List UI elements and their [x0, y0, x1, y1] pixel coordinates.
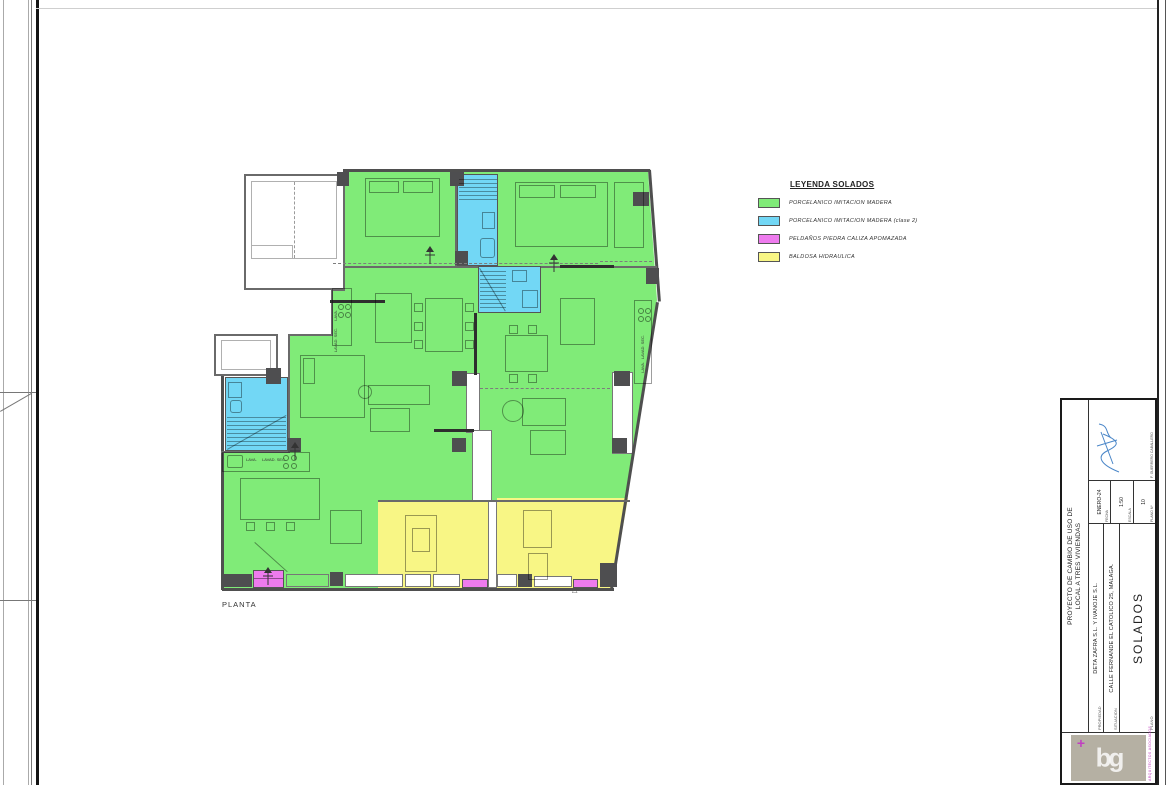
- chair: [465, 340, 474, 349]
- field-label: PLANO: [1149, 716, 1154, 730]
- column: [337, 172, 349, 186]
- project-title-line1: PROYECTO DE CAMBIO DE USO DE: [1067, 507, 1075, 625]
- column: [614, 371, 630, 386]
- corridor-gap-lower: [472, 430, 492, 502]
- legend-item-label: BALDOSA HIDRAULICA: [789, 254, 855, 260]
- sheet-border-left: [36, 0, 39, 785]
- column: [452, 371, 467, 386]
- sofa: [368, 385, 430, 405]
- column: [222, 574, 252, 587]
- wall-bottom: [222, 588, 614, 591]
- firm-logo-square: + bg: [1071, 735, 1146, 781]
- column: [646, 268, 659, 284]
- wall-left-upper-a: [343, 172, 345, 290]
- legend-item-label: PORCELANICO IMITACION MADERA (clase 2): [789, 218, 917, 224]
- sofa: [530, 430, 566, 455]
- wardrobe: [614, 182, 644, 248]
- legend-title: LEYENDA SOLADOS: [790, 180, 988, 189]
- facade-window: [497, 574, 517, 587]
- field-label: SITUACION: [1113, 708, 1118, 730]
- kitchen-island: [375, 293, 412, 343]
- pillow: [403, 181, 433, 193]
- toilet: [480, 238, 495, 258]
- kitchen-island: [560, 298, 595, 345]
- cabinet: [412, 528, 430, 552]
- dining-table: [425, 298, 463, 352]
- legend-item-label: PORCELANICO IMITACION MADERA: [789, 200, 892, 206]
- facade-window: [286, 574, 329, 587]
- legend-item: BALDOSA HIDRAULICA: [758, 252, 988, 262]
- chair: [465, 303, 474, 312]
- title-block: + bg ARQUITECTOS ASOCIADOS PROYECTO DE C…: [1060, 398, 1157, 785]
- partywall-top-right: [560, 265, 614, 268]
- kitchen-sink: [227, 455, 243, 468]
- chair: [509, 374, 518, 383]
- chair: [266, 522, 275, 531]
- chair: [465, 322, 474, 331]
- patio-step-outline: [251, 245, 293, 259]
- shelf: [330, 510, 362, 544]
- legend-item: PELDAÑOS PIEDRA CALIZA APOMAZADA: [758, 234, 988, 244]
- field-situacion: SITUACION CALLE FERNANDE EL CATOLICO 25,…: [1104, 524, 1120, 732]
- wall-left-upper-e: [288, 335, 290, 452]
- hob-burner: [345, 304, 351, 310]
- dining-table: [505, 335, 548, 372]
- column: [330, 572, 343, 586]
- chair: [246, 522, 255, 531]
- sofa: [370, 408, 410, 432]
- stairs-arrow-icon: [424, 246, 436, 264]
- legend: LEYENDA SOLADOS PORCELANICO IMITACION MA…: [758, 180, 988, 270]
- entry-triangle-mark: △: [572, 586, 577, 594]
- shower: [522, 290, 538, 308]
- hob-burner: [338, 304, 344, 310]
- hob-burner: [345, 312, 351, 318]
- hob-burner: [638, 308, 644, 314]
- hob-burner: [291, 463, 297, 469]
- logo-caption: ARQUITECTOS ASOCIADOS: [1148, 726, 1152, 781]
- sheet-border-right-thick: [1157, 0, 1159, 785]
- facade-window: [433, 574, 460, 587]
- wall-top: [343, 169, 650, 172]
- facade-window: [405, 574, 431, 587]
- dashed-line: [480, 388, 610, 389]
- sheet-border-right-thin: [1165, 0, 1166, 785]
- legend-swatch-yellow: [758, 252, 780, 262]
- legend-swatch-green: [758, 198, 780, 208]
- facade-window: [345, 574, 403, 587]
- chair: [414, 340, 423, 349]
- meta-value: 10: [1141, 499, 1147, 505]
- fold-mark: [0, 600, 36, 601]
- column: [452, 438, 466, 452]
- signature-icon: [1091, 420, 1127, 476]
- pillow: [369, 181, 399, 193]
- appliance-label: LAVA.: [334, 310, 338, 321]
- field-plano: PLANO SOLADOS: [1120, 524, 1155, 732]
- dining-table: [240, 478, 320, 520]
- partywall-mid: [474, 313, 477, 375]
- wall-left: [221, 376, 224, 590]
- meta-label: PLANO Nº: [1150, 505, 1154, 522]
- appliance-label: LAVA.: [641, 362, 645, 373]
- meta-value: ENERO-24: [1097, 490, 1103, 515]
- column: [266, 368, 281, 384]
- legend-item: PORCELANICO IMITACION MADERA: [758, 198, 988, 208]
- plan-title: PLANTA: [222, 600, 257, 609]
- hob-burner: [645, 316, 651, 322]
- chair: [509, 325, 518, 334]
- meta-plano-num: PLANO Nº 10: [1134, 481, 1155, 523]
- stairs-top: [459, 176, 497, 203]
- pillow: [560, 185, 596, 198]
- fold-mark-diagonal: [0, 393, 32, 412]
- signature-caption: F. GUERRERO CABALLERO: [1150, 432, 1154, 478]
- entry-steps-middle: [462, 579, 488, 588]
- field-value: DETA ZAFRA S.L. Y IVANOJE S.L.: [1093, 582, 1099, 673]
- logo-plus-icon: +: [1077, 735, 1085, 751]
- meta-fecha: FECHA ENERO-24: [1089, 481, 1111, 523]
- dashed-line: [600, 261, 652, 262]
- appliance-label: LAVA.: [246, 458, 257, 462]
- legend-swatch-blue: [758, 216, 780, 226]
- chair: [414, 322, 423, 331]
- appliance-label: LAVAD. SEC.: [641, 335, 645, 359]
- sink: [512, 270, 527, 282]
- stairs-arrow-icon: [289, 442, 301, 460]
- entry-arrow-icon: [262, 567, 274, 585]
- hob-burner: [645, 308, 651, 314]
- pillow: [303, 358, 315, 384]
- sink: [228, 382, 242, 398]
- stairs-arrow-icon: [548, 254, 560, 272]
- chair: [528, 374, 537, 383]
- patio-mid-left-inner: [221, 340, 271, 370]
- legend-item: PORCELANICO IMITACION MADERA (clase 2): [758, 216, 988, 226]
- column: [600, 563, 617, 587]
- sheet-name: SOLADOS: [1131, 592, 1145, 664]
- yellow-divider-wall: [488, 500, 497, 588]
- chair: [286, 522, 295, 531]
- hob-burner: [338, 312, 344, 318]
- architect-signature: F. GUERRERO CABALLERO: [1089, 400, 1155, 480]
- wall-bedrooms: [344, 266, 478, 268]
- meta-escala: ESCALA 1:50: [1111, 481, 1133, 523]
- field-value: CALLE FERNANDE EL CATOLICO 25, MALAGA.: [1109, 563, 1115, 692]
- side-table: [358, 385, 372, 399]
- meta-value: 1:50: [1119, 497, 1125, 507]
- project-title: PROYECTO DE CAMBIO DE USO DE LOCAL A TRE…: [1062, 400, 1089, 732]
- legend-item-label: PELDAÑOS PIEDRA CALIZA APOMAZADA: [789, 236, 907, 242]
- partywall-low: [434, 429, 474, 432]
- sofa: [522, 398, 566, 426]
- pillow: [519, 185, 555, 198]
- appliance-label: LAVAD. SEC.: [334, 328, 338, 352]
- field-propiedad: PROPIEDAD DETA ZAFRA S.L. Y IVANOJE S.L.: [1089, 524, 1104, 732]
- cabinet: [528, 553, 548, 580]
- chair: [414, 303, 423, 312]
- corridor-gap-upper: [466, 373, 480, 433]
- cabinet: [523, 510, 552, 548]
- hob-burner: [283, 463, 289, 469]
- field-label: PROPIEDAD: [1097, 706, 1102, 730]
- wall-left-upper-d: [288, 334, 333, 336]
- sink: [482, 212, 495, 229]
- wall-above-yellow: [378, 500, 630, 502]
- project-title-line2: LOCAL A TRES VIVIENDAS: [1075, 523, 1083, 609]
- toilet: [230, 400, 242, 413]
- logo-letters: bg: [1096, 743, 1122, 774]
- appliance-label: LAVAD. SEC.: [262, 458, 286, 462]
- sheet-border-top: [36, 8, 1157, 9]
- meta-label: FECHA: [1105, 510, 1109, 522]
- legend-swatch-magenta: [758, 234, 780, 244]
- meta-label: ESCALA: [1128, 508, 1132, 522]
- hob-burner: [638, 316, 644, 322]
- patio-dashed-line: [294, 182, 295, 258]
- column: [612, 438, 627, 453]
- armchair: [502, 400, 524, 422]
- chair: [528, 325, 537, 334]
- firm-logo: + bg ARQUITECTOS ASOCIADOS: [1062, 732, 1155, 783]
